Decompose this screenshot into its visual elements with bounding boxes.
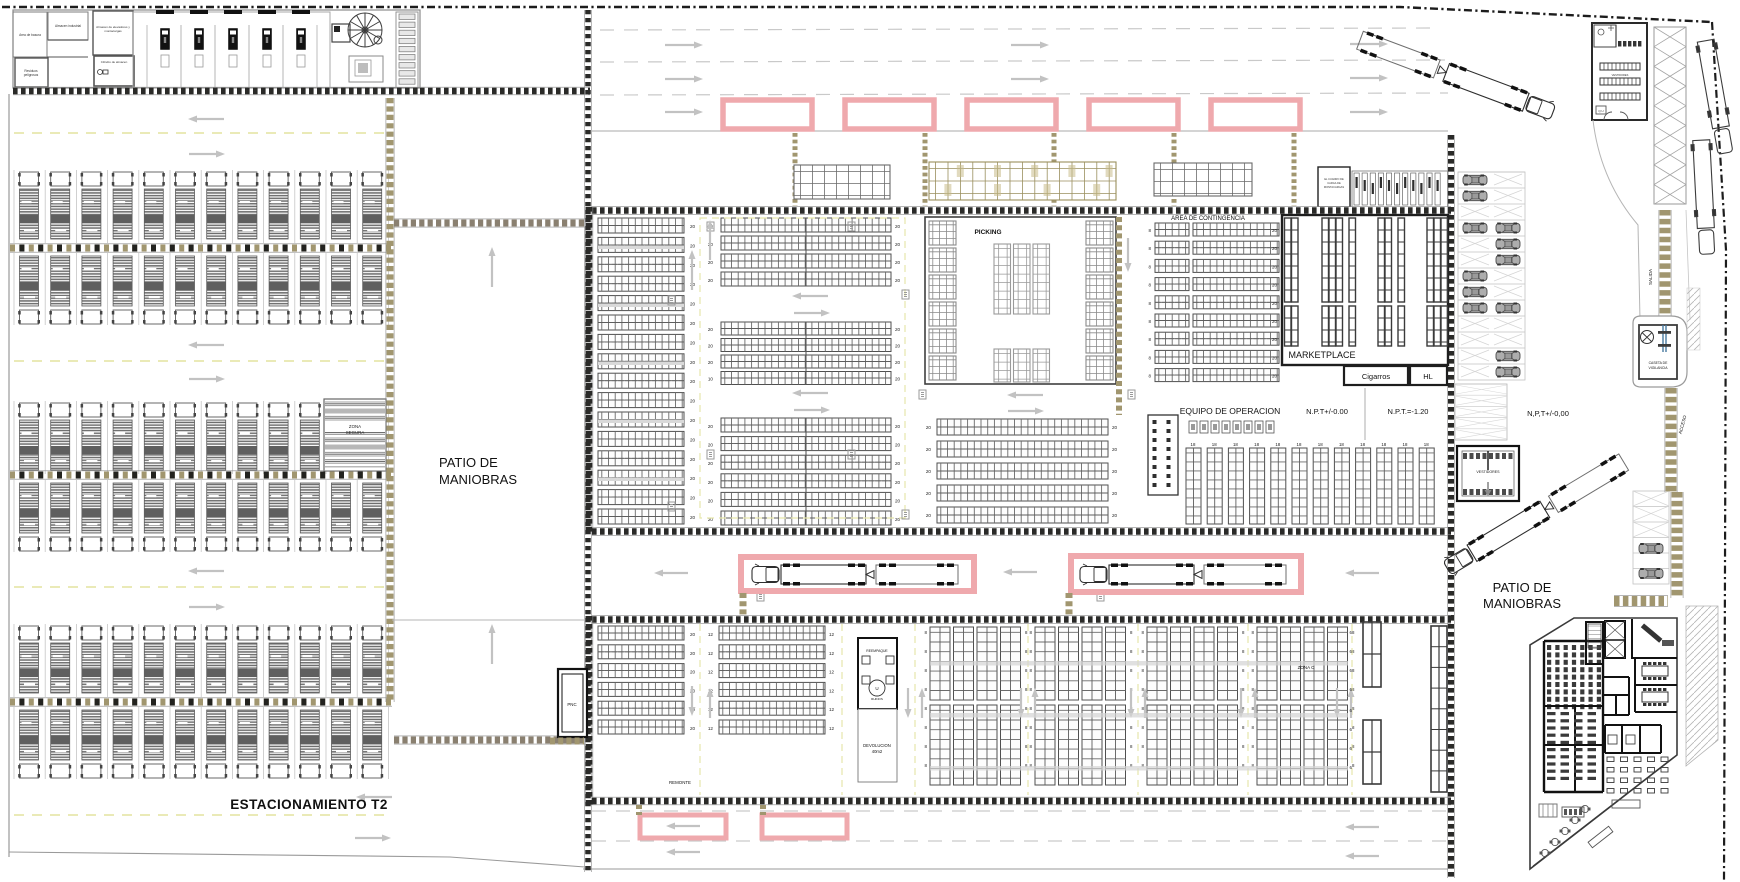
svg-text:20: 20 bbox=[690, 418, 696, 423]
svg-text:20: 20 bbox=[895, 498, 901, 503]
svg-text:EQUIPO DE OPERACION: EQUIPO DE OPERACION bbox=[1180, 406, 1281, 416]
svg-text:U: U bbox=[875, 686, 878, 691]
svg-text:20: 20 bbox=[1272, 246, 1277, 251]
svg-text:18: 18 bbox=[1381, 442, 1386, 447]
svg-text:12: 12 bbox=[708, 670, 714, 675]
svg-text:20: 20 bbox=[1272, 355, 1277, 360]
svg-text:EL CUADRO DE: EL CUADRO DE bbox=[1324, 177, 1344, 181]
svg-text:20: 20 bbox=[895, 461, 901, 466]
svg-text:20: 20 bbox=[1272, 319, 1277, 324]
svg-text:20: 20 bbox=[708, 260, 714, 265]
svg-text:PICKING: PICKING bbox=[974, 229, 1001, 236]
svg-text:SEGURA: SEGURA bbox=[346, 430, 365, 435]
svg-text:20: 20 bbox=[895, 327, 901, 332]
svg-text:PATIO DE: PATIO DE bbox=[439, 455, 498, 470]
svg-text:20: 20 bbox=[1272, 337, 1277, 342]
svg-text:20: 20 bbox=[690, 670, 696, 675]
svg-text:20: 20 bbox=[690, 360, 696, 365]
svg-text:12: 12 bbox=[829, 688, 835, 693]
svg-text:N.P.T+/-0.00: N.P.T+/-0.00 bbox=[1306, 407, 1348, 416]
svg-text:20: 20 bbox=[1112, 469, 1118, 474]
svg-text:20: 20 bbox=[926, 469, 932, 474]
svg-text:20: 20 bbox=[690, 224, 696, 229]
svg-text:20: 20 bbox=[690, 515, 696, 520]
svg-text:20: 20 bbox=[708, 360, 714, 365]
svg-text:20: 20 bbox=[1112, 447, 1118, 452]
svg-text:Cilindro de almacen: Cilindro de almacen bbox=[101, 60, 128, 64]
svg-text:20: 20 bbox=[708, 424, 714, 429]
svg-text:20: 20 bbox=[1272, 301, 1277, 306]
svg-text:CARGA DE: CARGA DE bbox=[1327, 181, 1341, 185]
svg-text:ESTACIONAMIENTO T2: ESTACIONAMIENTO T2 bbox=[230, 797, 387, 812]
svg-text:20: 20 bbox=[690, 457, 696, 462]
svg-text:MARKETPLACE: MARKETPLACE bbox=[1288, 350, 1355, 360]
svg-text:20: 20 bbox=[708, 327, 714, 332]
svg-text:20: 20 bbox=[1112, 425, 1118, 430]
svg-text:20: 20 bbox=[690, 632, 696, 637]
svg-text:20: 20 bbox=[895, 377, 901, 382]
svg-text:Almacen industrial: Almacen industrial bbox=[55, 24, 81, 28]
svg-text:20: 20 bbox=[926, 447, 932, 452]
svg-text:40m2: 40m2 bbox=[872, 749, 883, 754]
svg-text:20: 20 bbox=[895, 344, 901, 349]
svg-text:12: 12 bbox=[829, 670, 835, 675]
svg-text:20: 20 bbox=[1112, 491, 1118, 496]
svg-text:20: 20 bbox=[708, 278, 714, 283]
svg-text:Q.U: Q.U bbox=[1598, 109, 1603, 113]
svg-text:RHINOS: RHINOS bbox=[871, 697, 883, 701]
svg-text:12: 12 bbox=[829, 632, 835, 637]
svg-text:20: 20 bbox=[1272, 264, 1277, 269]
svg-text:MANIOBRAS: MANIOBRAS bbox=[1483, 596, 1561, 611]
svg-text:20: 20 bbox=[690, 379, 696, 384]
svg-text:20: 20 bbox=[690, 437, 696, 442]
svg-text:REMONTE: REMONTE bbox=[669, 780, 691, 785]
svg-text:12: 12 bbox=[708, 726, 714, 731]
svg-text:20: 20 bbox=[895, 224, 901, 229]
svg-text:Area de basura: Area de basura bbox=[19, 33, 41, 37]
svg-text:Cigarros: Cigarros bbox=[1362, 372, 1391, 381]
svg-text:12: 12 bbox=[829, 651, 835, 656]
svg-text:CASETA DE: CASETA DE bbox=[1649, 361, 1669, 365]
svg-text:ZONA: ZONA bbox=[349, 424, 361, 429]
svg-text:20: 20 bbox=[895, 242, 901, 247]
svg-text:20: 20 bbox=[690, 399, 696, 404]
svg-text:N.P.T.=-1.20: N.P.T.=-1.20 bbox=[1388, 407, 1429, 416]
svg-text:18: 18 bbox=[1191, 442, 1196, 447]
svg-text:20: 20 bbox=[1112, 513, 1118, 518]
svg-text:20: 20 bbox=[690, 651, 696, 656]
svg-text:20: 20 bbox=[895, 480, 901, 485]
svg-text:20: 20 bbox=[690, 302, 696, 307]
svg-text:SALIDA: SALIDA bbox=[1648, 269, 1653, 285]
svg-text:20: 20 bbox=[690, 243, 696, 248]
svg-text:18: 18 bbox=[1275, 442, 1280, 447]
svg-text:PATIO DE: PATIO DE bbox=[1493, 580, 1552, 595]
svg-text:N,P,T+/-0,00: N,P,T+/-0,00 bbox=[1527, 409, 1569, 418]
svg-text:12: 12 bbox=[708, 632, 714, 637]
svg-text:18: 18 bbox=[1254, 442, 1259, 447]
svg-text:VESTIDORES: VESTIDORES bbox=[1612, 73, 1629, 77]
svg-text:12: 12 bbox=[829, 707, 835, 712]
svg-text:18: 18 bbox=[1424, 442, 1429, 447]
svg-text:18: 18 bbox=[1212, 442, 1217, 447]
svg-text:18: 18 bbox=[1297, 442, 1302, 447]
svg-text:20: 20 bbox=[690, 340, 696, 345]
svg-text:20: 20 bbox=[708, 480, 714, 485]
svg-text:20: 20 bbox=[895, 260, 901, 265]
svg-text:20: 20 bbox=[708, 344, 714, 349]
svg-text:20: 20 bbox=[895, 278, 901, 283]
svg-text:20: 20 bbox=[690, 476, 696, 481]
svg-text:20: 20 bbox=[1272, 283, 1277, 288]
svg-text:10: 10 bbox=[708, 377, 714, 382]
svg-text:20: 20 bbox=[926, 425, 932, 430]
svg-text:MONTACARGAS: MONTACARGAS bbox=[1324, 185, 1344, 189]
svg-text:PNC: PNC bbox=[567, 702, 576, 707]
svg-text:20: 20 bbox=[1272, 228, 1277, 233]
svg-text:20: 20 bbox=[708, 461, 714, 466]
svg-text:DEVOLUCION: DEVOLUCION bbox=[863, 743, 891, 748]
svg-text:20: 20 bbox=[708, 498, 714, 503]
svg-text:18: 18 bbox=[1360, 442, 1365, 447]
svg-text:20: 20 bbox=[690, 496, 696, 501]
svg-text:VIGILANCIA: VIGILANCIA bbox=[1648, 366, 1668, 370]
svg-text:18: 18 bbox=[1318, 442, 1323, 447]
svg-text:18: 18 bbox=[1339, 442, 1344, 447]
svg-text:MANIOBRAS: MANIOBRAS bbox=[439, 472, 517, 487]
svg-text:ZONA C: ZONA C bbox=[1298, 665, 1316, 670]
svg-text:REEMPAQUE: REEMPAQUE bbox=[866, 649, 888, 653]
svg-text:20: 20 bbox=[690, 321, 696, 326]
svg-text:18: 18 bbox=[1233, 442, 1238, 447]
svg-text:20: 20 bbox=[926, 513, 932, 518]
svg-text:20: 20 bbox=[926, 491, 932, 496]
svg-text:montacargas: montacargas bbox=[104, 29, 122, 33]
svg-text:18: 18 bbox=[1403, 442, 1408, 447]
svg-text:20: 20 bbox=[895, 424, 901, 429]
svg-text:20: 20 bbox=[895, 443, 901, 448]
svg-text:AREA DE CONTINGENCIA: AREA DE CONTINGENCIA bbox=[1171, 216, 1245, 222]
svg-text:peligrosos: peligrosos bbox=[24, 73, 39, 77]
svg-text:12: 12 bbox=[829, 726, 835, 731]
svg-text:20: 20 bbox=[1272, 374, 1277, 379]
svg-text:12: 12 bbox=[708, 651, 714, 656]
svg-text:20: 20 bbox=[708, 443, 714, 448]
svg-text:VESTIDORES: VESTIDORES bbox=[1476, 470, 1500, 474]
svg-text:20: 20 bbox=[690, 726, 696, 731]
svg-text:20: 20 bbox=[895, 360, 901, 365]
svg-text:HL: HL bbox=[1423, 372, 1433, 381]
